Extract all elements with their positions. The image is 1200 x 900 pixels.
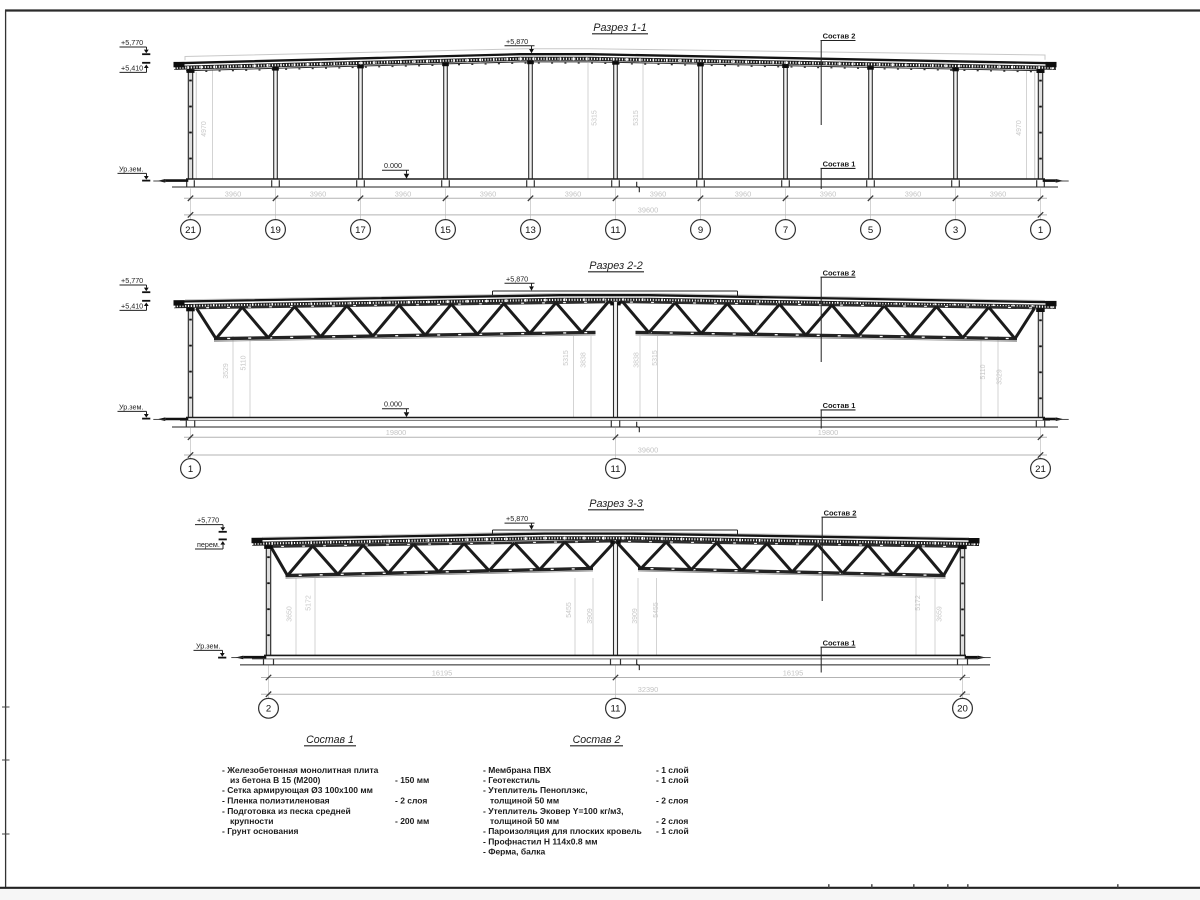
- svg-text:+5,870: +5,870: [506, 274, 528, 283]
- svg-text:5172: 5172: [306, 595, 313, 611]
- svg-text:5315: 5315: [592, 110, 599, 126]
- svg-text:Ур.зем.: Ур.зем.: [119, 402, 143, 411]
- svg-text:19: 19: [270, 225, 281, 236]
- svg-text:+5,410: +5,410: [121, 301, 143, 310]
- svg-text:5315: 5315: [652, 350, 659, 366]
- svg-text:Ур.зем.: Ур.зем.: [119, 164, 143, 173]
- svg-text:- 150 мм: - 150 мм: [395, 775, 429, 785]
- svg-text:- Пленка полиэтиленовая: - Пленка полиэтиленовая: [222, 796, 330, 806]
- svg-text:- 2 слоя: - 2 слоя: [656, 796, 688, 806]
- svg-text:- 1 слой: - 1 слой: [656, 826, 689, 836]
- svg-text:4970: 4970: [1016, 120, 1023, 136]
- svg-text:16195: 16195: [783, 668, 804, 677]
- svg-text:5: 5: [868, 225, 873, 236]
- svg-text:39600: 39600: [638, 446, 659, 455]
- svg-text:0.000: 0.000: [384, 400, 402, 409]
- svg-text:15: 15: [440, 225, 451, 236]
- svg-text:+5,770: +5,770: [121, 276, 143, 285]
- svg-text:3960: 3960: [650, 189, 666, 198]
- svg-text:5455: 5455: [653, 602, 660, 618]
- svg-text:- Железобетонная монолитная п: - Железобетонная монолитная плита: [222, 765, 379, 775]
- svg-text:Разрез 1-1: Разрез 1-1: [593, 22, 647, 34]
- svg-text:11: 11: [611, 225, 621, 236]
- svg-text:3: 3: [953, 225, 958, 236]
- svg-text:11: 11: [611, 704, 621, 715]
- svg-text:5110: 5110: [980, 364, 987, 379]
- svg-text:Состав 2: Состав 2: [824, 508, 857, 517]
- svg-text:+5,770: +5,770: [121, 38, 143, 47]
- svg-text:4970: 4970: [201, 121, 208, 137]
- svg-text:3960: 3960: [310, 189, 326, 198]
- svg-text:- 2 слоя: - 2 слоя: [395, 796, 427, 806]
- svg-text:39600: 39600: [638, 205, 659, 214]
- svg-text:- 1 слой: - 1 слой: [656, 765, 689, 775]
- svg-text:3650: 3650: [287, 606, 294, 622]
- svg-text:Разрез 3-3: Разрез 3-3: [589, 498, 643, 510]
- svg-text:Состав 2: Состав 2: [573, 734, 621, 746]
- svg-text:Ур.зем.: Ур.зем.: [196, 641, 220, 650]
- svg-text:5315: 5315: [633, 110, 640, 126]
- svg-text:3529: 3529: [223, 363, 230, 379]
- svg-text:- Утеплитель Эковер Y=100 кг/м: - Утеплитель Эковер Y=100 кг/м3,: [483, 806, 624, 816]
- svg-text:7: 7: [783, 225, 788, 236]
- svg-text:крупности: крупности: [230, 816, 274, 826]
- svg-text:Состав 1: Состав 1: [306, 734, 354, 746]
- svg-text:Состав 1: Состав 1: [823, 401, 856, 410]
- svg-text:Состав 1: Состав 1: [823, 160, 856, 169]
- svg-text:- Ферма, балка: - Ферма, балка: [483, 847, 546, 857]
- svg-text:3838: 3838: [581, 352, 588, 368]
- svg-text:3960: 3960: [735, 189, 751, 198]
- svg-text:0.000: 0.000: [384, 161, 402, 170]
- svg-text:19800: 19800: [818, 428, 839, 437]
- svg-text:21: 21: [1035, 464, 1046, 475]
- svg-text:3909: 3909: [587, 608, 594, 624]
- svg-text:3960: 3960: [480, 189, 496, 198]
- svg-text:- Грунт основания: - Грунт основания: [222, 826, 298, 836]
- svg-text:толщиной 50 мм: толщиной 50 мм: [490, 816, 559, 826]
- svg-text:9: 9: [698, 225, 703, 236]
- svg-text:+5,870: +5,870: [506, 514, 528, 523]
- svg-text:3960: 3960: [225, 189, 241, 198]
- svg-text:+5,410: +5,410: [121, 63, 143, 72]
- svg-text:1: 1: [1038, 225, 1043, 236]
- svg-text:11: 11: [611, 464, 621, 475]
- svg-text:3960: 3960: [905, 189, 921, 198]
- svg-text:32390: 32390: [638, 685, 659, 694]
- svg-text:Состав 1: Состав 1: [823, 638, 856, 647]
- svg-text:21: 21: [185, 225, 196, 236]
- svg-text:3960: 3960: [990, 189, 1006, 198]
- svg-text:16195: 16195: [432, 668, 453, 677]
- svg-text:- Сетка армирующая Ø3 100х100: - Сетка армирующая Ø3 100х100 мм: [222, 785, 373, 795]
- svg-text:3838: 3838: [634, 352, 641, 368]
- svg-text:- 200 мм: - 200 мм: [395, 816, 429, 826]
- svg-text:17: 17: [355, 225, 366, 236]
- svg-text:5172: 5172: [915, 595, 922, 611]
- svg-text:- Утеплитель Пеноплэкс,: - Утеплитель Пеноплэкс,: [483, 785, 588, 795]
- svg-text:3960: 3960: [395, 189, 411, 198]
- svg-text:3960: 3960: [565, 189, 581, 198]
- svg-text:Разрез 2-2: Разрез 2-2: [589, 260, 643, 272]
- svg-text:- Мембрана ПВХ: - Мембрана ПВХ: [483, 765, 551, 775]
- svg-text:20: 20: [957, 704, 968, 715]
- svg-text:19800: 19800: [386, 428, 407, 437]
- svg-text:перем.: перем.: [197, 540, 220, 549]
- svg-text:Состав 2: Состав 2: [823, 32, 856, 41]
- svg-text:13: 13: [525, 225, 536, 236]
- svg-text:5315: 5315: [563, 350, 570, 366]
- svg-text:+5,770: +5,770: [197, 516, 219, 525]
- svg-text:толщиной 50 мм: толщиной 50 мм: [490, 796, 559, 806]
- svg-text:- 2 слоя: - 2 слоя: [656, 816, 688, 826]
- svg-text:- Профнастил Н 114х0.8 мм: - Профнастил Н 114х0.8 мм: [483, 836, 598, 846]
- svg-text:3909: 3909: [632, 608, 639, 624]
- svg-text:- Пароизоляция для плоских кро: - Пароизоляция для плоских кровель: [483, 826, 642, 836]
- svg-text:1: 1: [188, 464, 193, 475]
- svg-text:5455: 5455: [566, 602, 573, 618]
- svg-text:Состав 2: Состав 2: [823, 268, 856, 277]
- svg-text:- 1 слой: - 1 слой: [656, 775, 689, 785]
- svg-text:5110: 5110: [241, 355, 248, 370]
- svg-text:из бетона В 15 (М200): из бетона В 15 (М200): [230, 775, 321, 785]
- svg-text:3960: 3960: [820, 189, 836, 198]
- svg-text:3529: 3529: [997, 369, 1004, 385]
- svg-text:- Подготовка из песка средней: - Подготовка из песка средней: [222, 806, 351, 816]
- svg-text:- Геотекстиль: - Геотекстиль: [483, 775, 540, 785]
- svg-text:3659: 3659: [937, 606, 944, 622]
- svg-text:+5,870: +5,870: [506, 37, 528, 46]
- svg-text:2: 2: [266, 704, 271, 715]
